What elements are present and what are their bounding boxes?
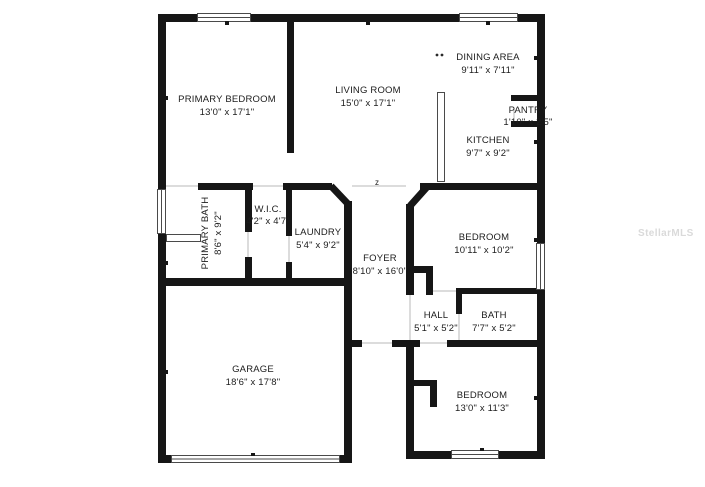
room-label-laundry: LAUNDRY [295, 227, 342, 238]
wall [420, 183, 537, 190]
room-label-garage: GARAGE [232, 364, 274, 375]
room-dims-dining-area: 9'11" x 7'11" [461, 65, 514, 76]
room-dims-living-room: 15'0" x 17'1" [341, 98, 396, 109]
foyer-note-marker: z [375, 178, 379, 187]
wall [286, 262, 292, 278]
mls-watermark: StellarMLS [638, 228, 705, 239]
wall [158, 278, 352, 286]
room-dims-garage: 18'6" x 17'8" [226, 377, 281, 388]
wall [283, 183, 332, 190]
wall [406, 340, 414, 459]
room-label-living-room: LIVING ROOM [335, 85, 401, 96]
room-dims-primary-bath: 8'6" x 9'2" [213, 211, 224, 255]
floor-plan: PRIMARY BEDROOM 13'0" x 17'1" LIVING ROO… [0, 0, 705, 487]
wall [537, 14, 545, 459]
room-label-wic: W.I.C. [254, 204, 281, 215]
room-label-primary-bath: PRIMARY BATH [200, 197, 211, 270]
room-dims-wic: 4'2" x 4'7" [246, 216, 290, 227]
room-label-bath: BATH [481, 310, 506, 321]
room-dims-bedroom-1: 10'11" x 10'2" [454, 245, 513, 256]
column-marker [441, 54, 444, 57]
room-dims-kitchen: 9'7" x 9'2" [466, 148, 510, 159]
room-labels: PRIMARY BEDROOM 13'0" x 17'1" LIVING ROO… [178, 52, 552, 414]
room-dims-primary-bedroom: 13'0" x 17'1" [200, 107, 255, 118]
room-dims-bedroom-2: 13'0" x 11'3" [455, 403, 509, 414]
wall [287, 14, 294, 153]
room-label-dining-area: DINING AREA [456, 52, 520, 63]
wall [344, 201, 352, 463]
room-dims-foyer: 8'10" x 16'0" [353, 266, 408, 277]
laundry-chamfer-wall [331, 186, 349, 205]
wall [245, 257, 252, 278]
room-label-pantry: PANTRY [509, 105, 548, 116]
wall [158, 14, 166, 463]
room-dims-hall: 5'1" x 5'2" [414, 323, 458, 334]
room-label-bedroom-2: BEDROOM [457, 390, 508, 401]
room-label-hall: HALL [424, 310, 449, 321]
wall [430, 380, 437, 407]
wall [414, 266, 428, 273]
kitchen-counter [438, 93, 445, 182]
wall [456, 288, 538, 294]
column-marker [436, 54, 439, 57]
room-dims-laundry: 5'4" x 9'2" [296, 240, 340, 251]
room-label-primary-bedroom: PRIMARY BEDROOM [178, 94, 276, 105]
wall [456, 288, 462, 314]
floor-plan-drawing: PRIMARY BEDROOM 13'0" x 17'1" LIVING ROO… [0, 0, 705, 487]
bath-vanity [167, 235, 201, 242]
room-dims-bath: 7'7" x 5'2" [472, 323, 516, 334]
room-label-kitchen: KITCHEN [466, 135, 509, 146]
room-label-foyer: FOYER [363, 253, 397, 264]
wall [406, 204, 414, 295]
wall [426, 266, 433, 295]
pantry-wall [511, 95, 538, 101]
wall [352, 340, 362, 347]
wall [198, 183, 253, 190]
room-label-bedroom-1: BEDROOM [459, 232, 510, 243]
wall [447, 340, 538, 347]
room-dims-pantry: 1'10" x 2'5" [503, 117, 552, 128]
wall [286, 189, 292, 236]
bedroom-chamfer-wall [410, 187, 427, 206]
